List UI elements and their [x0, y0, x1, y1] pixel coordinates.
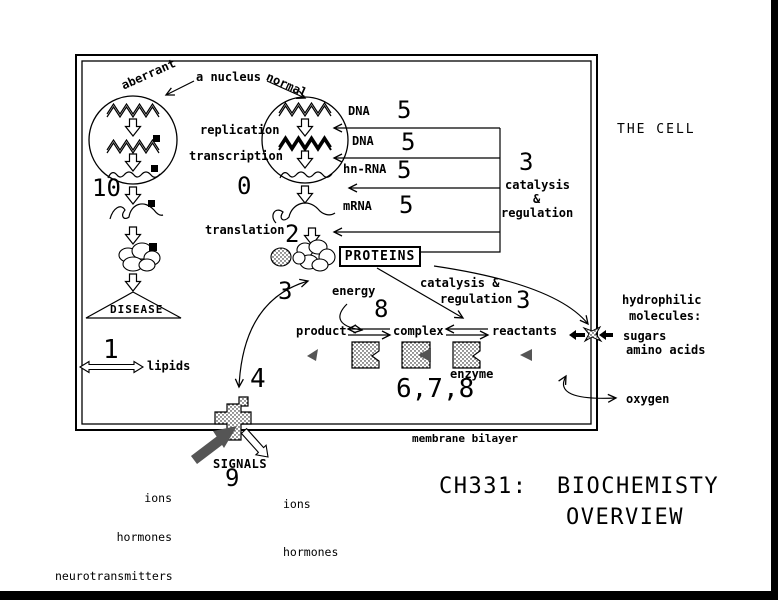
replication-label: replication: [200, 124, 279, 136]
num-transcription: 0: [237, 174, 251, 198]
hydrophilic-label1: hydrophilic: [622, 294, 701, 306]
num-translation: 2: [285, 222, 299, 246]
regulation-right-line3: regulation: [501, 207, 573, 219]
regulation-right-line2: &: [533, 193, 540, 205]
biochemistry-overview-diagram: a nucleus aberrant normal replication tr…: [0, 0, 778, 600]
inside-signal-list: ions hormones neurotransmitters antibodi…: [283, 463, 401, 600]
transporter-icon: [584, 327, 601, 341]
list-item: ions: [55, 492, 172, 505]
outside-signal-list: ions hormones neurotransmitters photons …: [55, 466, 172, 600]
page-title-line2: OVERVIEW: [566, 507, 684, 529]
kinetics-nums: 6,7,8: [396, 376, 474, 402]
oxygen-arrow: [563, 376, 616, 398]
enzyme-shapes: [307, 342, 532, 368]
mutation-square-icon: [148, 200, 155, 207]
arc-num-top: 3: [278, 279, 292, 303]
regulation-mid-line2: regulation: [440, 293, 512, 305]
mutation-square-icon: [153, 135, 160, 142]
oxygen-label: oxygen: [626, 393, 669, 405]
reactants-label: reactants: [492, 325, 557, 337]
mutation-square-icon: [151, 165, 158, 172]
dna2-label: DNA: [352, 135, 374, 147]
energy-label: energy: [332, 285, 375, 297]
list-item: hormones: [55, 531, 172, 544]
dna1-label: DNA: [348, 105, 370, 117]
signals-arrow-icon: [194, 426, 237, 460]
arc-num-bottom: 4: [250, 366, 266, 392]
protein-blob-dotted: [271, 248, 291, 266]
dna2-num: 5: [401, 130, 415, 154]
mrna-num: 5: [399, 193, 413, 217]
regulation-mid-line1: catalysis &: [420, 277, 499, 289]
product-triangle-icon: [307, 349, 318, 361]
protein-blob-aberrant: [119, 243, 160, 271]
energy-num: 8: [374, 297, 388, 321]
page-border-bottom: [0, 591, 778, 600]
page-title-line1: CH331: BIOCHEMISTY: [439, 476, 719, 498]
free-enzyme-icon: [352, 342, 379, 368]
product-label: product: [296, 325, 347, 337]
list-item: ions: [283, 496, 401, 512]
signals-label: SIGNALS: [213, 458, 267, 470]
regulation-mid-num: 3: [516, 288, 530, 312]
mutation-square-icon: [149, 243, 157, 251]
transcription-label: transcription: [189, 150, 283, 162]
translation-label: translation: [205, 224, 284, 236]
disease-label: DISEASE: [110, 304, 163, 315]
proteins-box: PROTEINS: [339, 246, 421, 267]
num-aberrant: 10: [92, 176, 121, 200]
enzyme-icon: [453, 342, 480, 368]
list-item: hormones: [283, 544, 401, 560]
mrna-label: mRNA: [343, 200, 372, 212]
signal-out-arrow-icon: [241, 429, 268, 457]
lipids-num: 1: [103, 337, 119, 363]
amino-acids-label: amino acids: [626, 344, 705, 356]
list-item: neurotransmitters: [55, 570, 172, 583]
hydrophilic-label2: molecules:: [629, 310, 701, 322]
hnrna-label: hn-RNA: [343, 163, 386, 175]
reactant-triangle-icon: [520, 349, 532, 361]
membrane-bilayer-label: membrane bilayer: [412, 433, 518, 444]
page-border-right: [771, 0, 778, 600]
lipids-label: lipids: [147, 360, 190, 372]
sugars-label: sugars: [623, 330, 666, 342]
nucleus-label: a nucleus: [196, 71, 261, 83]
regulation-right-line1: catalysis: [505, 179, 570, 191]
the-cell-label: THE CELL: [617, 123, 696, 136]
complex-label: complex: [393, 325, 444, 337]
hnrna-num: 5: [397, 158, 411, 182]
signals-num: 9: [225, 466, 239, 490]
mrna-squiggle-aberrant: [110, 200, 163, 219]
dna1-num: 5: [397, 98, 411, 122]
regulation-right-num: 3: [519, 150, 533, 174]
mrna-squiggle-normal: [273, 203, 335, 223]
nucleus-normal-circle: [262, 97, 348, 183]
